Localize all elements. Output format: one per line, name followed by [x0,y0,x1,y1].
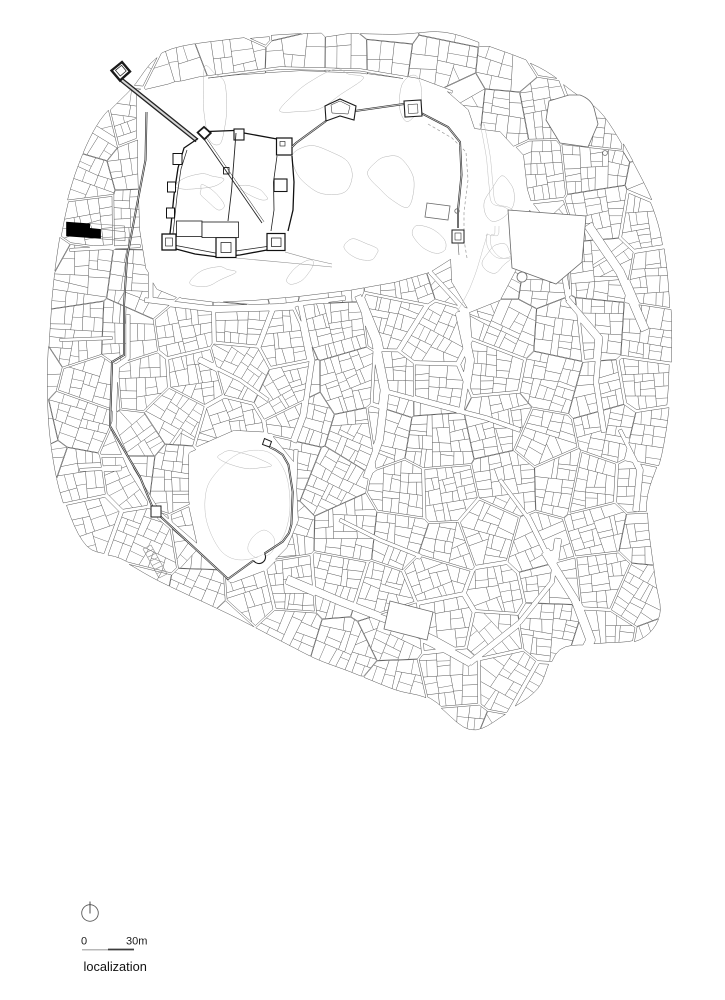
svg-text:30m: 30m [126,936,147,948]
svg-text:localization: localization [84,959,147,974]
svg-text:0: 0 [81,936,87,948]
